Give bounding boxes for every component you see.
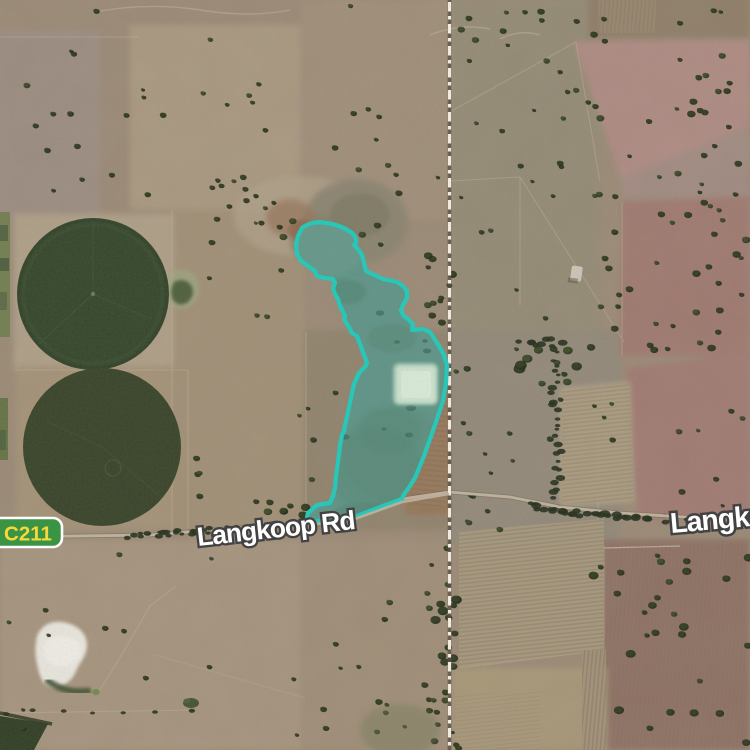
svg-text:C211: C211 bbox=[4, 523, 52, 546]
